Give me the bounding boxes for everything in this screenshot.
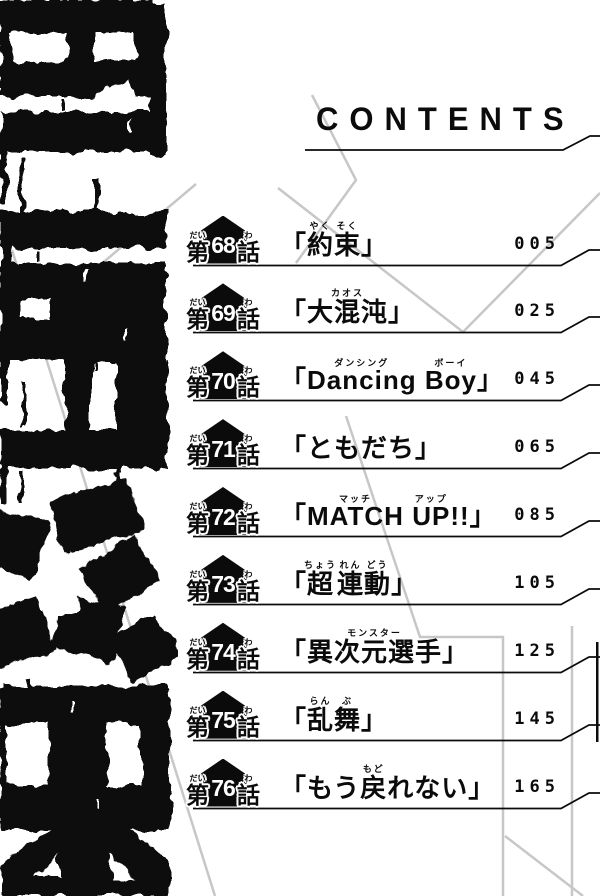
chapter-entry: 第だい 69 話わ 「大混沌カオス」 025 (0, 272, 600, 334)
chapter-suffix-text: 話 (237, 442, 260, 468)
chapter-prefix-ruby: だい (186, 774, 209, 783)
chapter-suffix-ruby: わ (237, 774, 260, 783)
chapter-badge: 第だい 73 話わ (186, 555, 260, 603)
chapter-prefix: 第だい (186, 774, 209, 807)
chapter-suffix: 話わ (237, 774, 260, 807)
chapter-number: 70 (211, 370, 235, 393)
chapter-entry: 第だい 74 話わ 「異次元選手モンスター」 125 (0, 612, 600, 674)
chapter-number: 76 (211, 777, 235, 800)
chapter-suffix-ruby: わ (237, 706, 260, 715)
chapter-suffix-text: 話 (237, 714, 260, 740)
chapter-prefix-text: 第 (186, 782, 209, 808)
chapter-prefix-ruby: だい (186, 298, 209, 307)
chapter-number: 71 (211, 438, 235, 461)
chapter-prefix: 第だい (186, 706, 209, 739)
chapter-suffix: 話わ (237, 231, 260, 264)
chapter-number: 69 (211, 302, 235, 325)
chapter-prefix-ruby: だい (186, 706, 209, 715)
chapter-prefix-text: 第 (186, 646, 209, 672)
chapter-suffix-ruby: わ (237, 298, 260, 307)
toc-page: CONTENTS 第だい 68 話わ 「約やく束そく」 005 第だい 69 話… (0, 0, 600, 896)
chapter-number: 74 (211, 641, 235, 664)
chapter-prefix-text: 第 (186, 239, 209, 265)
chapter-prefix-text: 第 (186, 306, 209, 332)
chapter-entry: 第だい 72 話わ 「MATCHマッチ UPアップ!!」 085 (0, 476, 600, 538)
chapter-prefix-ruby: だい (186, 366, 209, 375)
chapter-entry: 第だい 73 話わ 「超ちょう連れん動どう」 105 (0, 544, 600, 606)
chapter-suffix: 話わ (237, 706, 260, 739)
chapter-entry: 第だい 75 話わ 「乱らん舞ぶ」 145 (0, 680, 600, 742)
chapter-number: 68 (211, 234, 235, 257)
chapter-prefix-ruby: だい (186, 502, 209, 511)
contents-underline (300, 130, 600, 156)
chapter-suffix-text: 話 (237, 578, 260, 604)
chapter-prefix: 第だい (186, 502, 209, 535)
chapter-entry: 第だい 70 話わ 「Dancingダンシング Boyボーイ」 045 (0, 340, 600, 402)
chapter-prefix-ruby: だい (186, 570, 209, 579)
chapter-prefix: 第だい (186, 638, 209, 671)
chapter-entry: 第だい 71 話わ 「ともだち」 065 (0, 408, 600, 470)
chapter-badge: 第だい 74 話わ (186, 623, 260, 671)
chapter-prefix-text: 第 (186, 578, 209, 604)
chapter-suffix-ruby: わ (237, 570, 260, 579)
chapter-suffix-ruby: わ (237, 366, 260, 375)
chapter-suffix: 話わ (237, 298, 260, 331)
chapter-prefix: 第だい (186, 231, 209, 264)
chapter-suffix-ruby: わ (237, 638, 260, 647)
chapter-suffix: 話わ (237, 502, 260, 535)
chapter-suffix-text: 話 (237, 306, 260, 332)
chapter-badge: 第だい 72 話わ (186, 487, 260, 535)
chapter-suffix-text: 話 (237, 510, 260, 536)
chapter-suffix-ruby: わ (237, 231, 260, 240)
chapter-prefix-ruby: だい (186, 434, 209, 443)
chapter-prefix: 第だい (186, 434, 209, 467)
chapter-badge: 第だい 76 話わ (186, 759, 260, 807)
chapter-badge: 第だい 69 話わ (186, 283, 260, 331)
chapter-suffix-text: 話 (237, 374, 260, 400)
chapter-prefix: 第だい (186, 570, 209, 603)
chapter-prefix-ruby: だい (186, 638, 209, 647)
chapter-suffix: 話わ (237, 434, 260, 467)
chapter-badge: 第だい 75 話わ (186, 691, 260, 739)
chapter-entry: 第だい 68 話わ 「約やく束そく」 005 (0, 205, 600, 267)
chapter-suffix: 話わ (237, 570, 260, 603)
chapter-suffix-text: 話 (237, 782, 260, 808)
chapter-number: 73 (211, 573, 235, 596)
chapter-badge: 第だい 71 話わ (186, 419, 260, 467)
chapter-prefix: 第だい (186, 366, 209, 399)
chapter-number: 75 (211, 709, 235, 732)
chapter-badge: 第だい 68 話わ (186, 216, 260, 264)
chapter-entry: 第だい 76 話わ 「もう戻もどれない」 165 (0, 748, 600, 810)
chapter-prefix: 第だい (186, 298, 209, 331)
chapter-suffix-text: 話 (237, 646, 260, 672)
chapter-prefix-text: 第 (186, 442, 209, 468)
chapter-suffix: 話わ (237, 638, 260, 671)
chapter-prefix-text: 第 (186, 374, 209, 400)
chapter-suffix-text: 話 (237, 239, 260, 265)
chapter-number: 72 (211, 506, 235, 529)
chapter-badge: 第だい 70 話わ (186, 351, 260, 399)
chapter-prefix-text: 第 (186, 510, 209, 536)
chapter-suffix-ruby: わ (237, 434, 260, 443)
chapter-prefix-text: 第 (186, 714, 209, 740)
chapter-prefix-ruby: だい (186, 231, 209, 240)
chapter-suffix: 話わ (237, 366, 260, 399)
chapter-suffix-ruby: わ (237, 502, 260, 511)
